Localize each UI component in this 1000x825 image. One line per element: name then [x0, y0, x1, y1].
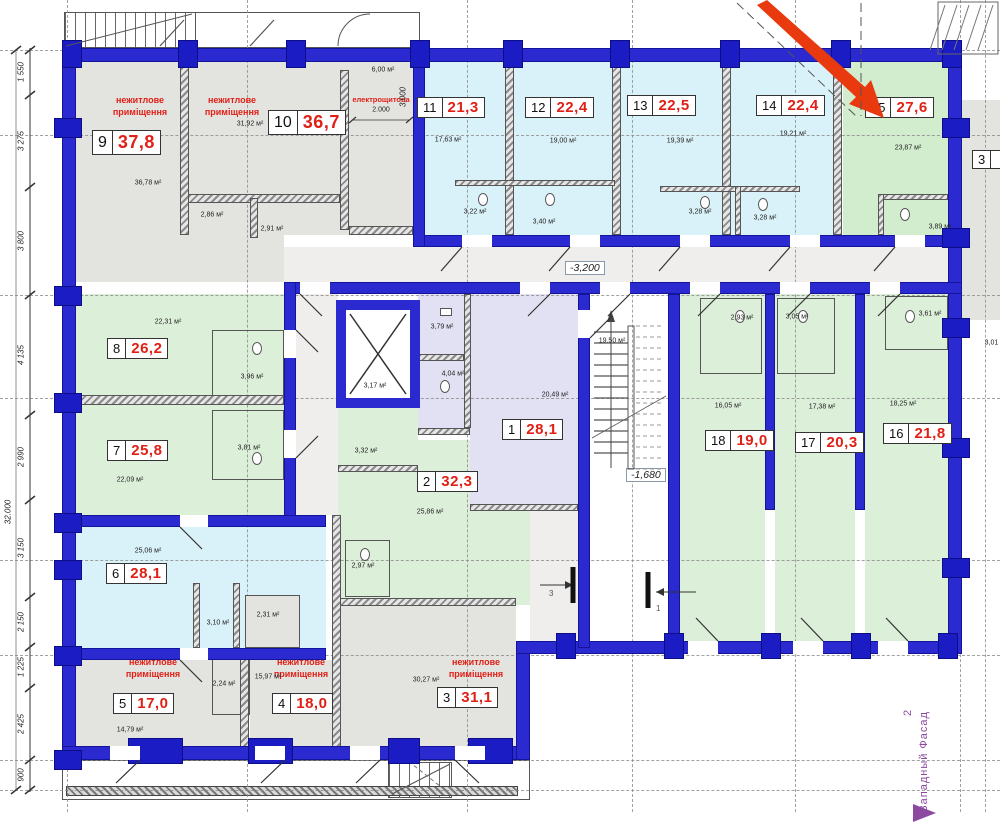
wall-pilaster [938, 633, 958, 659]
unit-box-9: 937,8 [92, 130, 161, 155]
door-gap [284, 330, 296, 358]
unit-box-3: 331,1 [437, 687, 498, 708]
partition-bath [735, 186, 741, 235]
dim-label: 2 150 [17, 612, 26, 632]
partition-7-8 [76, 395, 284, 405]
area-label: 3,81 м² [238, 445, 261, 452]
room-outline-3-61 [885, 296, 948, 350]
unit-box-12: 1222,4 [525, 97, 594, 118]
area-label: 31,92 м² [237, 121, 264, 128]
wall-pilaster [761, 633, 781, 659]
unit-area: 18,0 [291, 694, 332, 713]
unit-number: 10 [269, 111, 298, 134]
partition-bath [660, 186, 800, 192]
door-gap [600, 282, 630, 294]
partition-bath [878, 194, 884, 235]
unit-box-11: 1121,3 [417, 97, 485, 118]
dim-ticks [11, 46, 35, 794]
unit-area: 28,1 [521, 420, 562, 439]
wall-pilaster [942, 228, 970, 248]
toilet-icon [252, 342, 262, 355]
unit-number: 3 [973, 151, 991, 168]
unit-number: 4 [273, 694, 291, 713]
door-gap [455, 746, 485, 760]
unit-number: 12 [526, 98, 551, 117]
dim-label: 1 550 [17, 62, 26, 82]
partition [722, 62, 731, 235]
label-line: приміщення [205, 107, 259, 117]
area-label: 3,61 м² [919, 311, 942, 318]
unit-area: 36,7 [298, 111, 345, 134]
label-line: нежитлове [116, 95, 164, 105]
area-label: 3,96 м² [241, 374, 264, 381]
partition [505, 62, 514, 235]
area-label: 2,24 м² [213, 681, 236, 688]
room-outline-3-05 [777, 298, 835, 374]
section-marker-3: 3 [549, 589, 553, 598]
area-label: 3,28 м² [754, 215, 777, 222]
grid-line [795, 0, 796, 812]
room-unit-2b [470, 504, 530, 605]
unit-number: 16 [884, 424, 909, 443]
unit-box-6: 628,1 [106, 563, 167, 584]
wall-18-17 [765, 294, 775, 510]
dim-label: 3 800 [17, 231, 26, 251]
area-label: 3,89 м² [929, 224, 952, 231]
unit-area: 21,8 [909, 424, 950, 443]
unit-number: 15 [866, 98, 891, 117]
unit-number: 8 [108, 339, 126, 358]
area-label: 19,39 м² [667, 138, 694, 145]
area-label: 25,06 м² [135, 548, 162, 555]
area-label: 19,50 м² [599, 338, 626, 345]
area-label: 2,93 м² [731, 315, 754, 322]
wall-pilaster [54, 118, 82, 138]
toilet-icon [478, 193, 488, 206]
area-label: 3,17 м² [364, 383, 387, 390]
door-gap [255, 746, 285, 760]
wall-stair-left [578, 294, 590, 648]
door-gap [180, 515, 208, 527]
door-gap [790, 235, 820, 247]
door-gap [895, 235, 925, 247]
unit-area: 27,6 [891, 98, 932, 117]
unit-area: 25,8 [126, 441, 167, 460]
unit-area: 22,4 [551, 98, 592, 117]
area-label: 2,86 м² [201, 212, 224, 219]
area-label: 14,79 м² [117, 727, 144, 734]
unit-area: 31,1 [456, 688, 497, 707]
partition-unit3-top [338, 598, 516, 606]
door-gap [520, 282, 550, 294]
area-label: 20,49 м² [542, 392, 569, 399]
label-nonresidential-9: нежитлове приміщення [113, 95, 167, 118]
partition [418, 428, 470, 435]
area-label: 6,00 м² [372, 67, 395, 74]
unit-box-15: 1527,6 [865, 97, 934, 118]
door-gap [110, 746, 140, 760]
partition [612, 62, 621, 235]
unit-number: 13 [628, 96, 653, 115]
label-line: приміщення [126, 669, 180, 679]
area-label: 22,09 м² [117, 477, 144, 484]
area-label: 19,00 м² [550, 138, 577, 145]
unit-box-2: 232,3 [417, 471, 478, 492]
unit-number: 17 [796, 433, 821, 452]
partition [349, 226, 413, 235]
entry-area [530, 504, 578, 641]
unit-area: 28,1 [125, 564, 166, 583]
dim-label: 2 425 [17, 714, 26, 734]
unit-number: 1 [503, 420, 521, 439]
unit-box-8: 826,2 [107, 338, 168, 359]
partition [833, 62, 842, 235]
facade-number: 2 [902, 696, 914, 716]
door-gap [793, 641, 823, 654]
unit-area: 26,2 [126, 339, 167, 358]
unit-area: 21,3 [443, 98, 484, 117]
partition [193, 583, 200, 648]
corridor [284, 247, 948, 282]
door-gap [680, 235, 710, 247]
wall-pilaster [942, 558, 970, 578]
area-label: 17,38 м² [809, 404, 836, 411]
area-label: 17,63 м² [435, 137, 462, 144]
label-line: приміщення [449, 669, 503, 679]
unit-box-7: 725,8 [107, 440, 168, 461]
area-label: 23,87 м² [895, 145, 922, 152]
room-nonres-lower [76, 235, 284, 282]
label-nonresidential-4: нежитлове приміщення [274, 657, 328, 680]
partition [180, 60, 189, 235]
wall-pilaster [54, 560, 82, 580]
door-gap [300, 282, 330, 294]
area-label: 3,79 м² [431, 324, 454, 331]
dim-label: 900 [17, 768, 26, 781]
wall-gray-cyan [413, 48, 425, 247]
label-line: приміщення [274, 669, 328, 679]
partition-bath [878, 194, 948, 200]
partition-5-4 [240, 655, 249, 748]
area-label: 2,91 м² [261, 226, 284, 233]
wall-pilaster [556, 633, 576, 659]
grid-line [0, 790, 1000, 791]
door-gap [350, 746, 380, 760]
area-label: 3,01 м² [985, 340, 1000, 347]
unit-number: 11 [418, 98, 443, 117]
toilet-icon [905, 310, 915, 323]
wall-pilaster [664, 633, 684, 659]
label-line: приміщення [113, 107, 167, 117]
wall-pilaster [503, 40, 523, 68]
unit-number: 14 [757, 96, 782, 115]
door-gap [180, 648, 208, 660]
wall-pilaster [54, 646, 82, 666]
door-gap [870, 282, 900, 294]
room-outline-2-93 [700, 298, 762, 374]
unit-number: 7 [108, 441, 126, 460]
wall-pilaster [388, 738, 420, 764]
dim-label: 2 990 [17, 447, 26, 467]
unit-number: 3 [438, 688, 456, 707]
partition [338, 465, 418, 472]
area-label: 16,05 м² [715, 403, 742, 410]
label-nonresidential-3: нежитлове приміщення [449, 657, 503, 680]
wall-step-right [516, 648, 530, 760]
wall-pilaster [610, 40, 630, 68]
partition [233, 583, 240, 648]
toilet-icon [758, 198, 768, 211]
grid-line [0, 560, 1000, 561]
section-marker-1: 1 [656, 604, 660, 613]
dim-label: 3 275 [17, 131, 26, 151]
area-label: 4,04 м² [442, 371, 465, 378]
toilet-icon [252, 452, 262, 465]
unit-area: 20,3 [821, 433, 862, 452]
unit-number: 9 [93, 131, 113, 154]
grid-line [0, 295, 1000, 296]
sink-icon [440, 308, 452, 316]
area-label: 36,78 м² [135, 180, 162, 187]
unit-area: 19,0 [731, 431, 772, 450]
label-line: нежитлове [129, 657, 177, 667]
side-room-white [962, 60, 1000, 100]
partition-bath [455, 180, 615, 186]
elevation-stair: -1,680 [626, 468, 666, 482]
dim-label-2000: 2.000 [372, 107, 390, 114]
unit-area: 37,8 [113, 131, 160, 154]
unit-area: 32,3 [436, 472, 477, 491]
wall-pilaster [410, 40, 430, 68]
facade-label: Западный Фасад [918, 692, 930, 812]
dim-total-label: 32.000 [4, 500, 13, 524]
unit-box-17: 1720,3 [795, 432, 864, 453]
area-label: 3,22 м² [464, 209, 487, 216]
area-label: 2,97 м² [352, 563, 375, 570]
wall-17-16 [855, 294, 865, 510]
unit-area: 17,0 [132, 694, 173, 713]
unit-box-16: 1621,8 [883, 423, 952, 444]
wall-pilaster [286, 40, 306, 68]
wall-pilaster [942, 40, 962, 68]
partition [188, 194, 340, 203]
label-line: нежитлове [277, 657, 325, 667]
room-unit-1 [470, 294, 578, 504]
door-gap [284, 430, 296, 458]
wall-pilaster [720, 40, 740, 68]
area-label: 3,10 м² [207, 620, 230, 627]
unit-number: 2 [418, 472, 436, 491]
wall-pilaster [831, 40, 851, 68]
grid-line [632, 0, 633, 812]
label-line: нежитлове [208, 95, 256, 105]
dim-label: 4 135 [17, 345, 26, 365]
unit-box-18: 1819,0 [705, 430, 774, 451]
area-label: 3,28 м² [689, 209, 712, 216]
label-nonresidential-10: нежитлове приміщення [205, 95, 259, 118]
room-2-31 [245, 595, 300, 648]
door-gap [688, 641, 718, 654]
dim-label: 1 225 [17, 657, 26, 677]
unit-box-13: 1322,5 [627, 95, 696, 116]
retaining-wall [66, 786, 518, 796]
door-gap [780, 282, 810, 294]
partition-left-of-3 [332, 515, 341, 755]
wall-pilaster [178, 40, 198, 68]
toilet-icon [900, 208, 910, 221]
area-label: 18,25 м² [890, 401, 917, 408]
unit-box-14: 1422,4 [756, 95, 825, 116]
unit-box-10: 1036,7 [268, 110, 346, 135]
unit-number: 5 [114, 694, 132, 713]
elevation-corridor: -3,200 [565, 261, 605, 275]
exterior-stair-top [64, 12, 196, 48]
unit-area [991, 151, 1000, 168]
unit-box-1: 128,1 [502, 419, 563, 440]
unit-box-4: 418,0 [272, 693, 333, 714]
dim-label-3000: 3.000 [399, 87, 408, 107]
grid-line [985, 0, 986, 812]
partition [470, 504, 578, 511]
floor-plan: нежитлове приміщення нежитлове приміщенн… [0, 0, 1000, 825]
wall-pilaster [851, 633, 871, 659]
area-label: 3,32 м² [355, 448, 378, 455]
toilet-icon [545, 193, 555, 206]
door-gap [578, 310, 590, 338]
unit-number: 18 [706, 431, 731, 450]
wall-center-left [284, 282, 296, 522]
elevator-shaft [336, 300, 420, 408]
area-label: 19,21 м² [780, 131, 807, 138]
wall-pilaster [942, 118, 970, 138]
area-label: 30,27 м² [413, 677, 440, 684]
area-label: 15,97 м² [255, 674, 282, 681]
area-label: 2,31 м² [257, 612, 280, 619]
partition [250, 198, 258, 238]
area-label: 3,05 м² [786, 314, 809, 321]
wall-pilaster [942, 318, 970, 338]
door-gap [462, 235, 492, 247]
unit-area: 22,5 [653, 96, 694, 115]
unit-number: 6 [107, 564, 125, 583]
unit-box-side: 3 [972, 150, 1000, 169]
door-gap [878, 641, 908, 654]
toilet-icon [360, 548, 370, 561]
wall-pilaster [54, 393, 82, 413]
area-label: 22,31 м² [155, 319, 182, 326]
toilet-icon [700, 196, 710, 209]
door-gap [690, 282, 720, 294]
area-label: 25,86 м² [417, 509, 444, 516]
wall-pilaster [62, 40, 82, 68]
dim-label: 3 150 [17, 538, 26, 558]
unit-area: 22,4 [782, 96, 823, 115]
label-nonresidential-5: нежитлове приміщення [126, 657, 180, 680]
wall-pilaster [54, 750, 82, 770]
partition [340, 70, 349, 230]
partition [418, 354, 464, 361]
door-gap [570, 235, 600, 247]
wall-pilaster [54, 513, 82, 533]
partition [464, 294, 471, 428]
area-label: 3,40 м² [533, 219, 556, 226]
label-line: нежитлове [452, 657, 500, 667]
unit-box-5: 517,0 [113, 693, 174, 714]
wall-stair-right [668, 294, 680, 648]
room-outline-3-96 [212, 330, 284, 396]
toilet-icon [440, 380, 450, 393]
wall-pilaster [54, 286, 82, 306]
